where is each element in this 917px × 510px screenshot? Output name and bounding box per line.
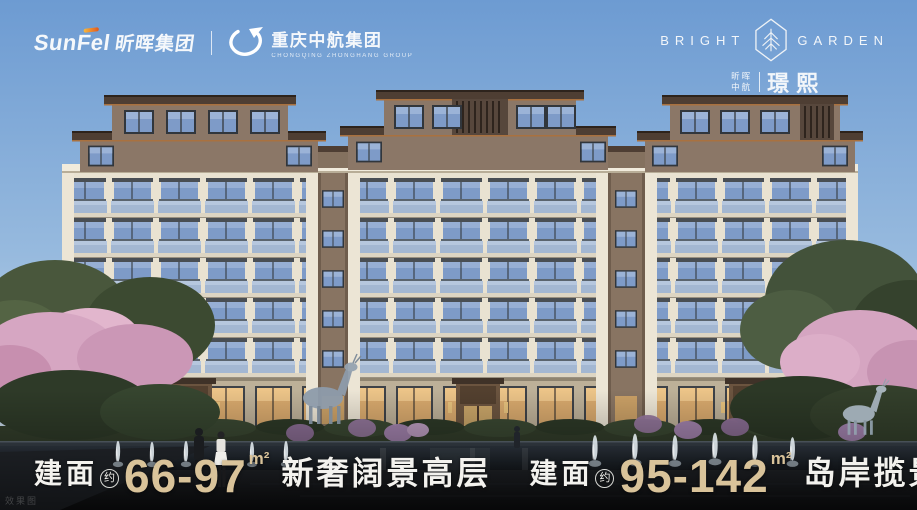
sunfel-logo: SunFel 昕晖集团: [32, 29, 197, 56]
approx-badge: 约: [100, 469, 119, 488]
area-range: 95-142: [619, 456, 768, 496]
brand-sub-line1: 昕晖: [731, 71, 752, 82]
area-unit: m²: [771, 449, 792, 469]
header-logos: SunFel 昕晖集团 重庆中航集团 CHONGQING ZHONGHANG G…: [34, 26, 413, 59]
project-brand: BRIGHT GARDEN 昕晖 中航 璟熙: [660, 18, 889, 98]
brand-word-left: BRIGHT: [660, 33, 745, 48]
render-watermark: 效果图: [5, 494, 38, 507]
penthouse-right: [637, 95, 863, 172]
zhonghang-swoosh-icon: [228, 27, 264, 59]
poster: SunFel 昕晖集团 重庆中航集团 CHONGQING ZHONGHANG G…: [0, 0, 917, 510]
logo-divider: [211, 31, 212, 55]
area-group-highrise: 建面 约 66-97 m² 新奢阔景高层: [34, 448, 491, 496]
zhonghang-en: CHONGQING ZHONGHANG GROUP: [271, 53, 413, 59]
brand-sub-divider: [759, 72, 760, 92]
approx-badge: 约: [595, 469, 614, 488]
zhonghang-cn: 重庆中航集团: [271, 26, 413, 51]
sunfel-cn: 昕晖集团: [113, 29, 197, 56]
area-group-garden-home: 建面 约 95-142 m² 岛岸揽景洋房: [529, 448, 917, 496]
zhonghang-logo: 重庆中航集团 CHONGQING ZHONGHANG GROUP: [228, 26, 413, 59]
footer-taglines: 建面 约 66-97 m² 新奢阔景高层 建面 约 95-142 m² 岛岸揽景…: [34, 448, 917, 496]
area-range: 66-97: [124, 456, 247, 496]
garden-emblem-icon: [755, 18, 787, 62]
area-tagline: 新奢阔景高层: [281, 448, 491, 494]
brand-word-right: GARDEN: [797, 33, 889, 48]
area-tagline: 岛岸揽景洋房: [804, 448, 917, 494]
area-prefix: 建面: [34, 452, 98, 492]
brand-name: 璟熙: [767, 66, 825, 98]
area-prefix: 建面: [529, 452, 593, 492]
sunfel-latin: SunFel: [32, 30, 112, 56]
area-unit: m²: [249, 449, 270, 469]
residential-building: [62, 90, 863, 438]
brand-sub-line2: 中航: [731, 82, 752, 93]
